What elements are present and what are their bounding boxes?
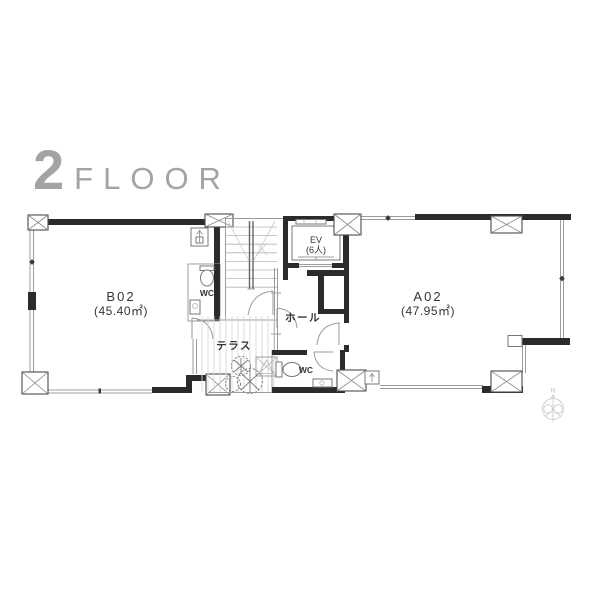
door-arc (317, 323, 339, 345)
pillar (205, 214, 233, 227)
sink-icon (190, 300, 200, 314)
pillar (334, 214, 361, 235)
ev-counterweight (296, 220, 326, 225)
room-a02: A02 (47.95㎡) (334, 214, 571, 393)
pillar (337, 370, 366, 391)
floor-plan-page: 2 FLOOR (0, 0, 600, 600)
room-a02-area: (47.95㎡) (401, 304, 455, 318)
pipe-space-b02 (191, 228, 208, 246)
wc-a02: WC (272, 350, 345, 393)
pillar (491, 371, 522, 392)
elevator-label: EV (310, 235, 322, 245)
compass-north-label: N (551, 388, 556, 395)
room-b02-name: B02 (106, 289, 135, 304)
room-a02-name: A02 (413, 289, 442, 304)
room-b02-area: (45.40㎡) (94, 304, 148, 318)
terrace-label: テラス (216, 340, 252, 352)
sink-icon (313, 379, 332, 387)
toilet-icon (200, 266, 214, 286)
floor-plan-drawing: B02 (45.40㎡) WC (0, 0, 600, 600)
wc-b02: WC (188, 264, 220, 339)
pillar (28, 215, 48, 230)
toilet-icon (276, 362, 301, 377)
pipe-space-a02 (365, 371, 379, 384)
door-arc (314, 352, 333, 371)
wc-a02-label: WC (299, 365, 313, 375)
wc-b02-label: WC (200, 288, 214, 298)
pillar (491, 216, 522, 233)
window-marker (99, 389, 102, 394)
wall-step (508, 336, 522, 347)
compass-icon: N (543, 388, 564, 423)
elevator-capacity: (6人) (306, 245, 326, 255)
room-b02: B02 (45.40㎡) (22, 214, 233, 395)
door-arc (248, 291, 273, 315)
hall-label: ホール (285, 312, 321, 324)
pillar (22, 372, 48, 394)
